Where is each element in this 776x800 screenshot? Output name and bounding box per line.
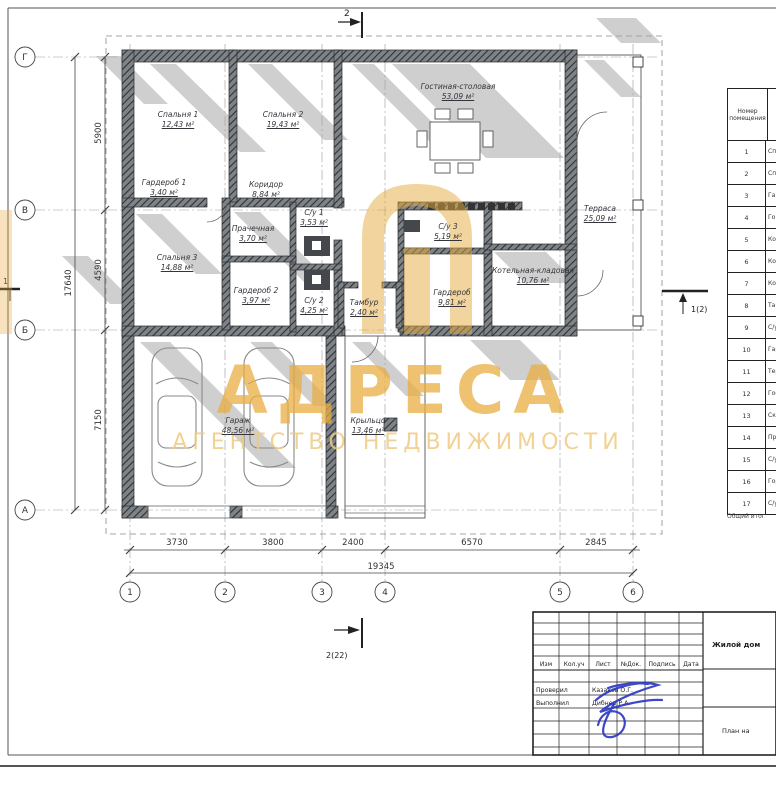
axis-col-3: 3 bbox=[319, 588, 325, 598]
room-area: 4,25 м² bbox=[300, 306, 328, 316]
legend-name: Го bbox=[766, 207, 776, 228]
tb-col-data: Дата bbox=[683, 661, 699, 668]
tb-checked-label: Проверил bbox=[536, 687, 568, 694]
room-label-garderob: Гардероб 9,81 м² bbox=[433, 288, 470, 308]
dim-5900: 5900 bbox=[94, 122, 104, 144]
room-label-garderob-2: Гардероб 2 3,97 м² bbox=[234, 286, 278, 306]
room-name: Крыльцо bbox=[351, 416, 386, 426]
room-name: С/у 2 bbox=[300, 296, 328, 306]
tb-col-izm: Изм bbox=[540, 661, 552, 668]
dim-4590: 4590 bbox=[94, 259, 104, 281]
legend-name: Гар bbox=[766, 339, 776, 360]
room-area: 13,46 м² bbox=[351, 426, 386, 436]
axis-row-a: А bbox=[22, 506, 29, 516]
room-name: Прачечная bbox=[232, 224, 274, 234]
legend-header-row: Номер помещения bbox=[728, 89, 776, 140]
legend-name: Сп bbox=[766, 163, 776, 184]
legend-num: 5 bbox=[728, 229, 766, 250]
room-name: Спальня 2 bbox=[263, 110, 304, 120]
room-name: Коридор bbox=[249, 180, 283, 190]
axis-col-2: 2 bbox=[222, 588, 228, 598]
legend-name: Ко bbox=[766, 251, 776, 272]
room-label-su-1: С/у 1 3,53 м² bbox=[300, 208, 328, 228]
room-area: 19,43 м² bbox=[263, 120, 304, 130]
legend-name: Гос bbox=[766, 383, 776, 404]
legend-row: 7Ко bbox=[728, 272, 776, 294]
room-label-garazh: Гараж 48,56 м² bbox=[222, 416, 255, 436]
room-area: 5,19 м² bbox=[434, 232, 462, 242]
legend-name: Ско bbox=[766, 405, 776, 426]
legend-name: С/у bbox=[766, 493, 776, 514]
dim-7150: 7150 bbox=[94, 409, 104, 431]
legend-row: 11Тер bbox=[728, 360, 776, 382]
section-mark-top: 2 bbox=[344, 9, 350, 19]
room-name: Котельная-кладовая bbox=[492, 266, 574, 276]
legend-name: С/у bbox=[766, 449, 776, 470]
legend-row: 3Га bbox=[728, 184, 776, 206]
legend-row: 4Го bbox=[728, 206, 776, 228]
room-area: 48,56 м² bbox=[222, 426, 255, 436]
legend-name: С/у bbox=[766, 317, 776, 338]
legend-header-name bbox=[768, 89, 776, 138]
tb-col-list: Лист bbox=[595, 661, 611, 668]
tb-drawn-label: Выполнил bbox=[536, 700, 569, 707]
legend-num: 7 bbox=[728, 273, 766, 294]
room-area: 8,84 м² bbox=[249, 190, 283, 200]
legend-row: 6Ко bbox=[728, 250, 776, 272]
room-name: Тамбур bbox=[350, 298, 379, 308]
legend-row: 2Сп bbox=[728, 162, 776, 184]
legend-row: 17С/у bbox=[728, 492, 776, 514]
room-area: 3,40 м² bbox=[142, 188, 186, 198]
legend-num: 17 bbox=[728, 493, 766, 514]
room-label-su-2: С/у 2 4,25 м² bbox=[300, 296, 328, 316]
legend-num: 2 bbox=[728, 163, 766, 184]
room-label-gostinaya: Гостиная-столовая 53,09 м² bbox=[421, 82, 496, 102]
dim-total-left: 17640 bbox=[64, 269, 74, 296]
legend-row: 12Гос bbox=[728, 382, 776, 404]
legend-name: Тер bbox=[766, 361, 776, 382]
legend-num: 11 bbox=[728, 361, 766, 382]
room-name: Гардероб 2 bbox=[234, 286, 278, 296]
section-mark-bottom: 2(22) bbox=[326, 651, 348, 660]
dim-2845: 2845 bbox=[585, 538, 607, 548]
room-area: 14,88 м² bbox=[157, 263, 198, 273]
section-mark-left: 1 bbox=[3, 277, 8, 286]
legend-num: 4 bbox=[728, 207, 766, 228]
room-area: 25,09 м² bbox=[584, 214, 617, 224]
legend-row: 1Сп bbox=[728, 140, 776, 162]
tb-col-koluch: Кол.уч bbox=[564, 661, 585, 668]
legend-num: 10 bbox=[728, 339, 766, 360]
legend-footer: Общий итог bbox=[727, 513, 765, 520]
legend-num: 16 bbox=[728, 471, 766, 492]
legend-row: 16Гор bbox=[728, 470, 776, 492]
room-name: Гостиная-столовая bbox=[421, 82, 496, 92]
room-label-spalnya-1: Спальня 1 12,43 м² bbox=[158, 110, 199, 130]
legend-name: Сп bbox=[766, 141, 776, 162]
legend-row: 9С/у bbox=[728, 316, 776, 338]
dim-total-bottom: 19345 bbox=[367, 562, 394, 572]
dim-6570: 6570 bbox=[461, 538, 483, 548]
tb-col-podpis: Подпись bbox=[649, 661, 676, 668]
room-name: Спальня 3 bbox=[157, 253, 198, 263]
axis-row-b: Б bbox=[22, 326, 28, 336]
legend-num: 6 bbox=[728, 251, 766, 272]
room-area: 9,81 м² bbox=[433, 298, 470, 308]
room-name: Гараж bbox=[222, 416, 255, 426]
room-area: 53,09 м² bbox=[421, 92, 496, 102]
tb-col-ndok: №Док. bbox=[621, 661, 641, 668]
axis-col-5: 5 bbox=[557, 588, 563, 598]
legend-num: 12 bbox=[728, 383, 766, 404]
legend-row: 15С/у bbox=[728, 448, 776, 470]
legend-table: Номер помещения 1Сп 2Сп 3Га 4Го 5Ко 6Ко … bbox=[727, 88, 776, 515]
section-marks: 2 2(22) 1(2) 1 bbox=[0, 9, 708, 660]
legend-name: Гор bbox=[766, 471, 776, 492]
legend-row: 5Ко bbox=[728, 228, 776, 250]
legend-row: 14Про bbox=[728, 426, 776, 448]
room-label-spalnya-3: Спальня 3 14,88 м² bbox=[157, 253, 198, 273]
room-area: 12,43 м² bbox=[158, 120, 199, 130]
openings bbox=[148, 506, 425, 518]
section-mark-right: 1(2) bbox=[691, 305, 707, 314]
room-name: Спальня 1 bbox=[158, 110, 199, 120]
tb-project-name: Жилой дом bbox=[712, 640, 760, 649]
room-label-garderob-1: Гардероб 1 3,40 м² bbox=[142, 178, 186, 198]
room-label-koridor: Коридор 8,84 м² bbox=[249, 180, 283, 200]
room-label-terrasa: Терраса 25,09 м² bbox=[584, 204, 617, 224]
drawing-sheet: 3730 3800 2400 6570 2845 19345 5900 4590… bbox=[0, 0, 776, 800]
room-label-tambur: Тамбур 2,40 м² bbox=[350, 298, 379, 318]
room-name: Терраса bbox=[584, 204, 617, 214]
legend-num: 3 bbox=[728, 185, 766, 206]
legend-header: Номер помещения bbox=[728, 89, 768, 140]
room-area: 3,70 м² bbox=[232, 234, 274, 244]
legend-num: 1 bbox=[728, 141, 766, 162]
room-label-prachechnaya: Прачечная 3,70 м² bbox=[232, 224, 274, 244]
legend-name: Ко bbox=[766, 273, 776, 294]
room-area: 3,97 м² bbox=[234, 296, 278, 306]
axis-row-g: Г bbox=[22, 53, 28, 63]
legend-row: 13Ско bbox=[728, 404, 776, 426]
legend-num: 14 bbox=[728, 427, 766, 448]
tb-sheet-label: План на bbox=[722, 727, 750, 735]
legend-num: 15 bbox=[728, 449, 766, 470]
room-name: Гардероб 1 bbox=[142, 178, 186, 188]
legend-name: Про bbox=[766, 427, 776, 448]
room-label-spalnya-2: Спальня 2 19,43 м² bbox=[263, 110, 304, 130]
room-name: С/у 3 bbox=[434, 222, 462, 232]
dim-3800: 3800 bbox=[262, 538, 284, 548]
legend-name: Ко bbox=[766, 229, 776, 250]
room-name: С/у 1 bbox=[300, 208, 328, 218]
room-label-krylco: Крыльцо 13,46 м² bbox=[351, 416, 386, 436]
legend-name: Та bbox=[766, 295, 776, 316]
room-area: 3,53 м² bbox=[300, 218, 328, 228]
room-area: 2,40 м² bbox=[350, 308, 379, 318]
dim-2400: 2400 bbox=[342, 538, 364, 548]
kitchen-units bbox=[428, 203, 515, 210]
axis-col-4: 4 bbox=[382, 588, 388, 598]
legend-num: 8 bbox=[728, 295, 766, 316]
room-label-kotelnaya: Котельная-кладовая 10,76 м² bbox=[492, 266, 574, 286]
room-label-su-3: С/у 3 5,19 м² bbox=[434, 222, 462, 242]
axis-col-6: 6 bbox=[630, 588, 636, 598]
room-name: Гардероб bbox=[433, 288, 470, 298]
axis-col-1: 1 bbox=[127, 588, 133, 598]
legend-row: 8Та bbox=[728, 294, 776, 316]
legend-num: 13 bbox=[728, 405, 766, 426]
legend-num: 9 bbox=[728, 317, 766, 338]
axis-row-v: В bbox=[22, 206, 28, 216]
dim-3730: 3730 bbox=[166, 538, 188, 548]
title-block: Изм Кол.уч Лист №Док. Подпись Дата Прове… bbox=[533, 612, 776, 755]
floor-plan-svg: 3730 3800 2400 6570 2845 19345 5900 4590… bbox=[0, 0, 776, 800]
legend-row: 10Гар bbox=[728, 338, 776, 360]
legend-name: Га bbox=[766, 185, 776, 206]
room-area: 10,76 м² bbox=[492, 276, 574, 286]
